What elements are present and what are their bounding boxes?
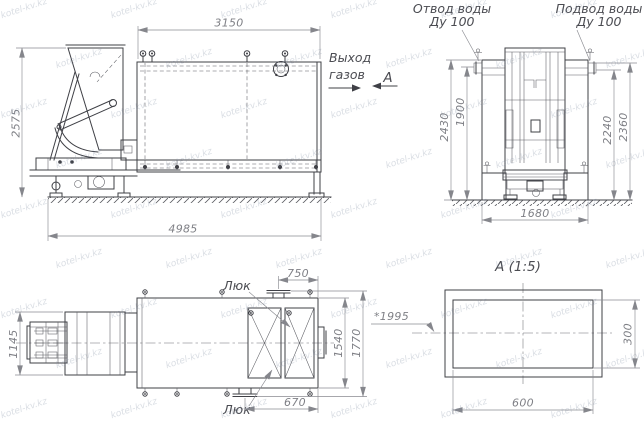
water-flange-right <box>588 62 596 74</box>
ref-note-text: *1995 <box>374 310 409 323</box>
tank-body <box>137 62 321 160</box>
dim-3150: 3150 <box>214 17 243 30</box>
end-view-dimensions: 2430 1900 2240 2360 1680 <box>438 60 637 224</box>
drawing-canvas: 3150 2575 4985 Выход газов А <box>0 0 644 430</box>
hopper-mark <box>90 72 100 77</box>
foundation-block-right <box>564 173 588 200</box>
dim-1540: 1540 <box>332 328 345 357</box>
gas-outlet-label-line2: газов <box>329 67 365 82</box>
tank-foot <box>309 193 324 197</box>
dim-750: 750 <box>287 267 309 280</box>
extension-lines-detail <box>453 300 640 414</box>
ref-note-leader <box>429 324 434 332</box>
body-detail-lines <box>482 52 588 163</box>
tank-seam-lines <box>140 63 318 168</box>
water-inlet-line2: Ду 100 <box>576 14 622 29</box>
detail-title: А (1:5) <box>494 259 541 275</box>
feeder-neck <box>125 313 137 372</box>
water-outlet-leader <box>462 30 479 61</box>
top-pipe-fitting <box>267 291 290 299</box>
hatch-label-top: Люк <box>222 278 251 293</box>
plan-view: Люк Люк *1995 1145 750 670 1540 1770 <box>7 267 434 417</box>
dim-1145: 1145 <box>7 329 20 358</box>
lift-arms <box>50 72 114 160</box>
technical-drawing: 3150 2575 4985 Выход газов А <box>0 0 644 430</box>
end-view: Отвод воды Ду 100 Подвод воды Ду 100 243… <box>413 1 643 224</box>
gas-outlet-label-line1: Выход <box>329 50 371 65</box>
side-view: 3150 2575 4985 Выход газов А <box>10 17 398 242</box>
reference-note: *1995 <box>371 310 434 332</box>
base-frame <box>503 170 567 199</box>
detail-dimensions: 300 600 <box>453 300 640 414</box>
furnace-body <box>505 48 565 170</box>
dim-1900: 1900 <box>454 97 467 126</box>
feeder-drum <box>65 312 125 375</box>
water-outlet-label: Отвод воды Ду 100 <box>413 1 491 61</box>
water-inlet-leader <box>577 30 590 61</box>
center-box <box>531 120 540 132</box>
view-a-letter: А <box>382 70 392 86</box>
bottom-pipe-fitting <box>233 388 257 397</box>
ground-hatch <box>48 197 331 203</box>
dim-2430: 2430 <box>438 112 451 141</box>
arm-pivot <box>110 100 117 107</box>
dim-670: 670 <box>284 396 306 409</box>
water-outlet-line2: Ду 100 <box>429 14 475 29</box>
detail-centerlines <box>412 283 612 384</box>
dim-300: 300 <box>622 323 635 345</box>
dim-1680: 1680 <box>520 207 549 220</box>
loader-platform <box>36 158 126 170</box>
water-flange-left <box>474 62 482 74</box>
outlet-flange-outer <box>445 290 602 377</box>
dim-4985: 4985 <box>168 223 197 236</box>
detail-view-a: А (1:5) 300 600 <box>412 259 640 414</box>
foundation-block-left <box>482 173 506 200</box>
hopper-loader <box>30 45 180 197</box>
dim-2360: 2360 <box>617 112 630 141</box>
dim-1770: 1770 <box>350 328 363 357</box>
tank-eye-bolts <box>140 51 288 62</box>
down-pipes <box>520 52 550 163</box>
water-inlet-label: Подвод воды Ду 100 <box>556 1 643 61</box>
ground-hatch-right <box>452 200 632 206</box>
loader-frame <box>30 170 180 193</box>
plan-view-dimensions: 1145 750 670 1540 1770 <box>7 267 367 413</box>
view-a-arrow-head <box>372 83 381 90</box>
tank-anchor-bolts <box>143 160 318 170</box>
right-flange <box>318 327 326 358</box>
feeder-mechanism <box>27 312 137 375</box>
dim-600: 600 <box>512 397 534 410</box>
dim-2240: 2240 <box>601 115 614 144</box>
hopper-funnel <box>68 48 123 150</box>
view-a-marker: А <box>372 70 397 89</box>
dim-2575: 2575 <box>10 108 23 137</box>
tank-right-wall-legs <box>314 62 320 194</box>
gas-flow-arrow-head <box>352 84 361 91</box>
hopper-leader <box>97 55 121 82</box>
air-valves <box>474 49 594 173</box>
gas-outlet-label: Выход газов <box>329 50 371 92</box>
water-panel-left <box>482 60 505 173</box>
side-view-dimensions: 3150 2575 4985 <box>10 17 322 242</box>
hatch-label-bottom: Люк <box>222 402 251 417</box>
water-panel-right <box>565 60 588 173</box>
